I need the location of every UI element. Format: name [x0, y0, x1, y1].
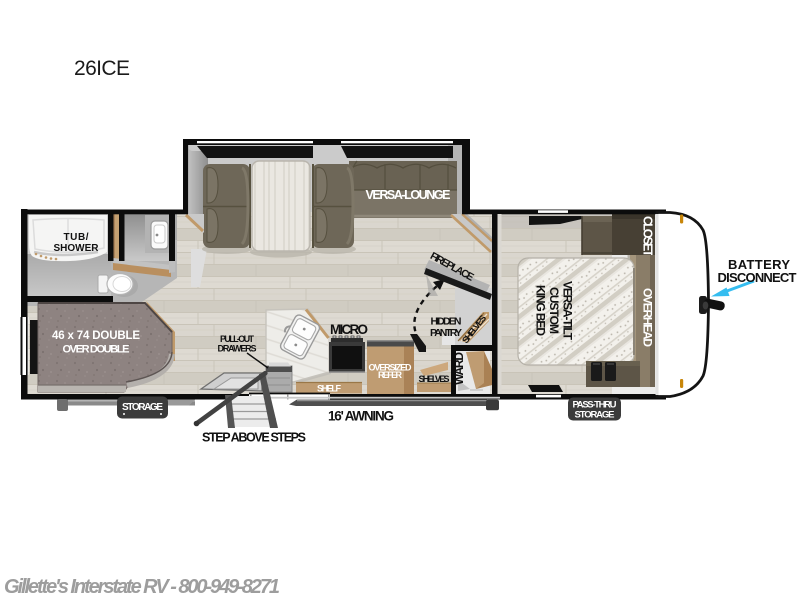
svg-text:STORAGE: STORAGE [122, 402, 163, 413]
svg-text:TUB/: TUB/ [64, 232, 89, 243]
svg-text:MICRO: MICRO [330, 322, 368, 337]
svg-text:PANTRY: PANTRY [430, 327, 462, 339]
svg-text:VERSA-TILT: VERSA-TILT [561, 281, 575, 341]
svg-text:SHOWER: SHOWER [54, 243, 100, 254]
svg-text:VERSA-LOUNGE: VERSA-LOUNGE [366, 188, 451, 202]
svg-text:HIDDEN: HIDDEN [431, 316, 462, 328]
svg-text:DISCONNECT: DISCONNECT [718, 270, 797, 285]
svg-text:26ICE: 26ICE [74, 57, 130, 80]
svg-text:STORAGE: STORAGE [575, 410, 615, 421]
svg-text:46 x 74 DOUBLE: 46 x 74 DOUBLE [52, 330, 140, 342]
svg-text:Gillette's Interstate RV - 800: Gillette's Interstate RV - 800-949-8271 [4, 576, 280, 598]
svg-text:SHELVES: SHELVES [419, 374, 450, 384]
svg-text:PULL-OUT: PULL-OUT [220, 334, 255, 344]
svg-text:OVER DOUBLE: OVER DOUBLE [63, 344, 130, 356]
svg-text:CLOSET: CLOSET [641, 216, 655, 257]
svg-text:STEP ABOVE STEPS: STEP ABOVE STEPS [202, 431, 306, 445]
svg-text:KING BED: KING BED [534, 285, 548, 336]
svg-text:DRAWERS: DRAWERS [218, 344, 257, 354]
svg-text:OVERHEAD: OVERHEAD [641, 288, 655, 347]
svg-text:CUSTOM: CUSTOM [547, 287, 561, 334]
svg-text:SHELF: SHELF [317, 383, 342, 393]
svg-text:REFER: REFER [378, 370, 403, 380]
svg-text:16' AWNING: 16' AWNING [328, 409, 394, 424]
